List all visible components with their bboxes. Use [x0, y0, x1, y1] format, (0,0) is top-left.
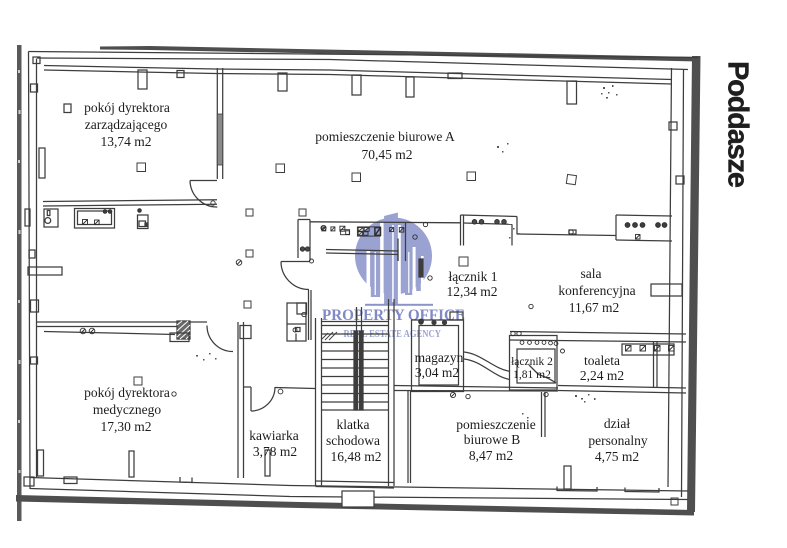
svg-text:magazyn: magazyn [415, 350, 464, 365]
svg-text:4,75 m2: 4,75 m2 [595, 449, 639, 464]
svg-text:medycznego: medycznego [93, 402, 161, 417]
svg-text:łącznik 1: łącznik 1 [448, 269, 497, 284]
svg-text:pokój dyrektora: pokój dyrektora [84, 100, 170, 115]
svg-text:łącznik 2: łącznik 2 [511, 356, 553, 368]
svg-text:kawiarka: kawiarka [249, 428, 298, 443]
svg-text:8,47 m2: 8,47 m2 [469, 448, 513, 463]
svg-text:13,74 m2: 13,74 m2 [100, 134, 151, 149]
svg-text:3,78 m2: 3,78 m2 [253, 444, 297, 459]
svg-text:dział: dział [604, 416, 630, 431]
svg-text:pokój dyrektora: pokój dyrektora [84, 385, 170, 400]
svg-text:pomieszczenie: pomieszczenie [456, 417, 535, 432]
svg-text:11,67 m2: 11,67 m2 [569, 300, 620, 315]
svg-text:biurowe B: biurowe B [464, 432, 521, 447]
svg-text:toaleta: toaleta [584, 353, 620, 368]
svg-text:zarządzającego: zarządzającego [85, 117, 168, 132]
svg-text:personalny: personalny [588, 433, 647, 448]
svg-text:konferencyjna: konferencyjna [558, 283, 635, 298]
svg-text:2,24 m2: 2,24 m2 [580, 368, 624, 383]
svg-text:schodowa: schodowa [326, 433, 380, 448]
svg-text:klatka: klatka [337, 417, 370, 432]
svg-text:17,30 m2: 17,30 m2 [100, 419, 151, 434]
svg-text:12,34 m2: 12,34 m2 [446, 284, 497, 299]
svg-text:16,48 m2: 16,48 m2 [330, 449, 381, 464]
svg-text:sala: sala [581, 266, 602, 281]
svg-text:Poddasze: Poddasze [722, 61, 754, 188]
svg-text:3,04 m2: 3,04 m2 [415, 365, 459, 380]
svg-text:pomieszczenie biurowe A: pomieszczenie biurowe A [315, 129, 455, 144]
svg-text:70,45 m2: 70,45 m2 [361, 147, 412, 162]
svg-text:1,81 m2: 1,81 m2 [513, 369, 551, 381]
